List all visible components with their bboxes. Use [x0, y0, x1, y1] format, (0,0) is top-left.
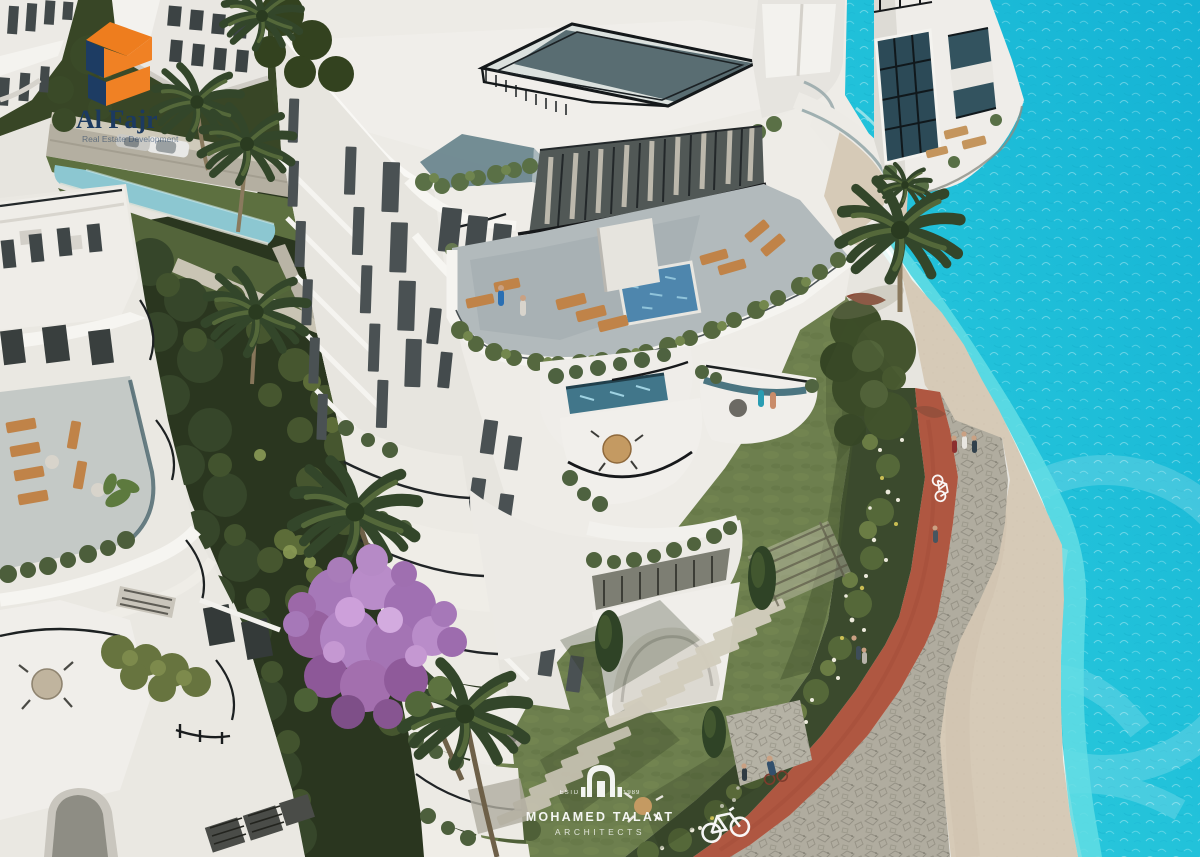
- svg-text:ARCHITECTS: ARCHITECTS: [555, 827, 645, 837]
- svg-text:Real Estate Development: Real Estate Development: [82, 134, 179, 144]
- svg-text:MOHAMED TALAAT: MOHAMED TALAAT: [526, 810, 674, 824]
- svg-text:1989: 1989: [623, 790, 640, 796]
- svg-text:Al Fajr: Al Fajr: [76, 105, 158, 134]
- svg-text:ESTD: ESTD: [560, 790, 579, 796]
